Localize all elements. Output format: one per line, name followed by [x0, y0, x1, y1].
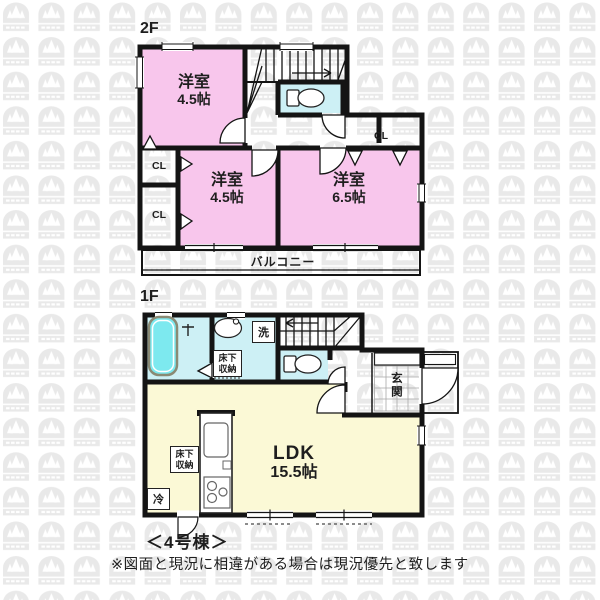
- floorplan-drawing: [0, 0, 600, 600]
- door-arc-2f-toilet: [322, 115, 345, 138]
- window: [162, 42, 193, 51]
- window: [316, 510, 372, 521]
- entrance-door-arc: [422, 368, 458, 404]
- window: [417, 426, 426, 445]
- balcony-2f: [142, 250, 420, 275]
- window: [280, 42, 313, 51]
- stairs-1f: [278, 315, 360, 348]
- underfloor-storage-box: 床下収納: [170, 446, 199, 473]
- kitchen-handle: [223, 461, 231, 469]
- underfloor-storage-label: 床下収納: [217, 353, 239, 375]
- window: [135, 57, 144, 88]
- floorplan-image: 2F 洋室 4.5帖 洋室 4.5帖 洋室 6.5帖 CL CL CL バルコニ…: [0, 0, 600, 600]
- fridge-box: 冷: [147, 488, 170, 510]
- toilet-icon-2f: [287, 89, 324, 107]
- porch-storage: [425, 355, 456, 365]
- door-arc-1f-toilet: [328, 367, 345, 384]
- entrance: [419, 352, 458, 413]
- window: [417, 184, 426, 202]
- kitchen-back-door: [177, 511, 199, 538]
- faucet: [233, 319, 238, 324]
- underfloor-storage-box: 床下収納: [213, 350, 242, 377]
- toilet-tank-1f: [284, 356, 296, 372]
- kitchen-sink: [204, 423, 228, 457]
- stove: [204, 477, 230, 508]
- underfloor-storage-label: 床下収納: [174, 449, 196, 471]
- genkan-tiles: [375, 366, 421, 411]
- washer-box: 洗: [252, 321, 275, 343]
- shoe-cabinet: [375, 353, 421, 365]
- window: [247, 510, 293, 521]
- toilet-bowl-1f: [295, 355, 321, 373]
